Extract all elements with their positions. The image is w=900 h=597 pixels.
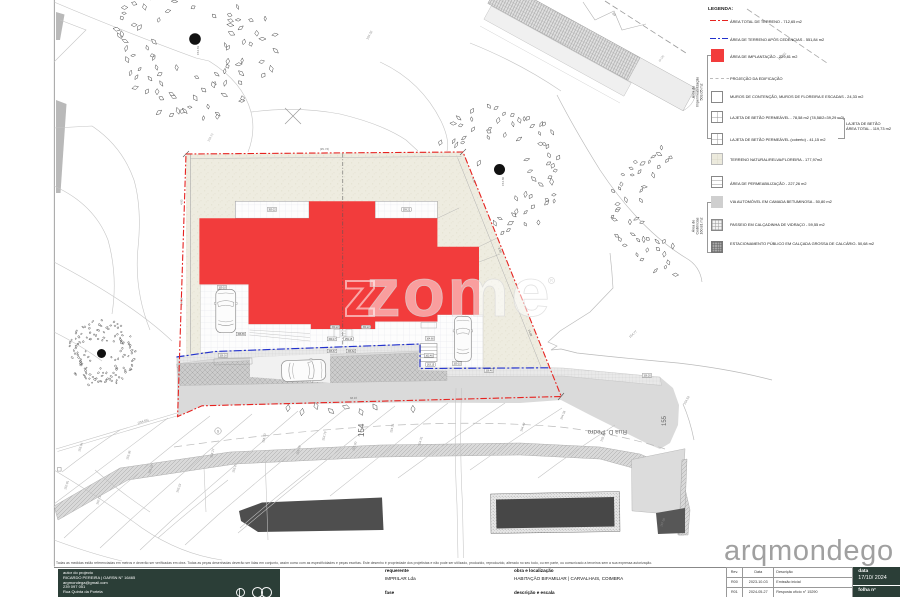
svg-text:R: R	[550, 278, 553, 283]
svg-text:Rua D. Pedro: Rua D. Pedro	[587, 428, 627, 435]
svg-text:(25.73): (25.73)	[320, 147, 329, 151]
svg-text:164.60: 164.60	[426, 338, 434, 341]
svg-text:159.10: 159.10	[453, 363, 461, 366]
svg-text:159.10: 159.10	[218, 287, 226, 290]
svg-text:159.17: 159.17	[328, 338, 336, 341]
svg-text:159.15: 159.15	[345, 338, 353, 341]
svg-text:zome: zome	[366, 254, 552, 331]
svg-text:359.22: 359.22	[403, 209, 411, 212]
svg-text:154.83: 154.83	[196, 45, 200, 55]
svg-text:158.82: 158.82	[347, 350, 355, 353]
svg-text:155: 155	[662, 415, 668, 426]
svg-text:154: 154	[357, 423, 366, 437]
svg-text:34.10: 34.10	[350, 396, 358, 400]
svg-text:156.16: 156.16	[219, 355, 227, 358]
svg-text:158.87: 158.87	[328, 350, 336, 353]
svg-text:163.15: 163.15	[427, 364, 435, 367]
svg-text:4.93: 4.93	[180, 199, 184, 205]
svg-text:159.22: 159.22	[331, 326, 339, 329]
svg-text:163.40: 163.40	[425, 355, 433, 358]
svg-text:156.20: 156.20	[643, 375, 651, 378]
svg-text:359.22: 359.22	[268, 209, 276, 212]
svg-text:158.65: 158.65	[237, 333, 245, 336]
svg-text:154.80: 154.80	[501, 176, 505, 186]
svg-text:158.40: 158.40	[485, 370, 493, 373]
